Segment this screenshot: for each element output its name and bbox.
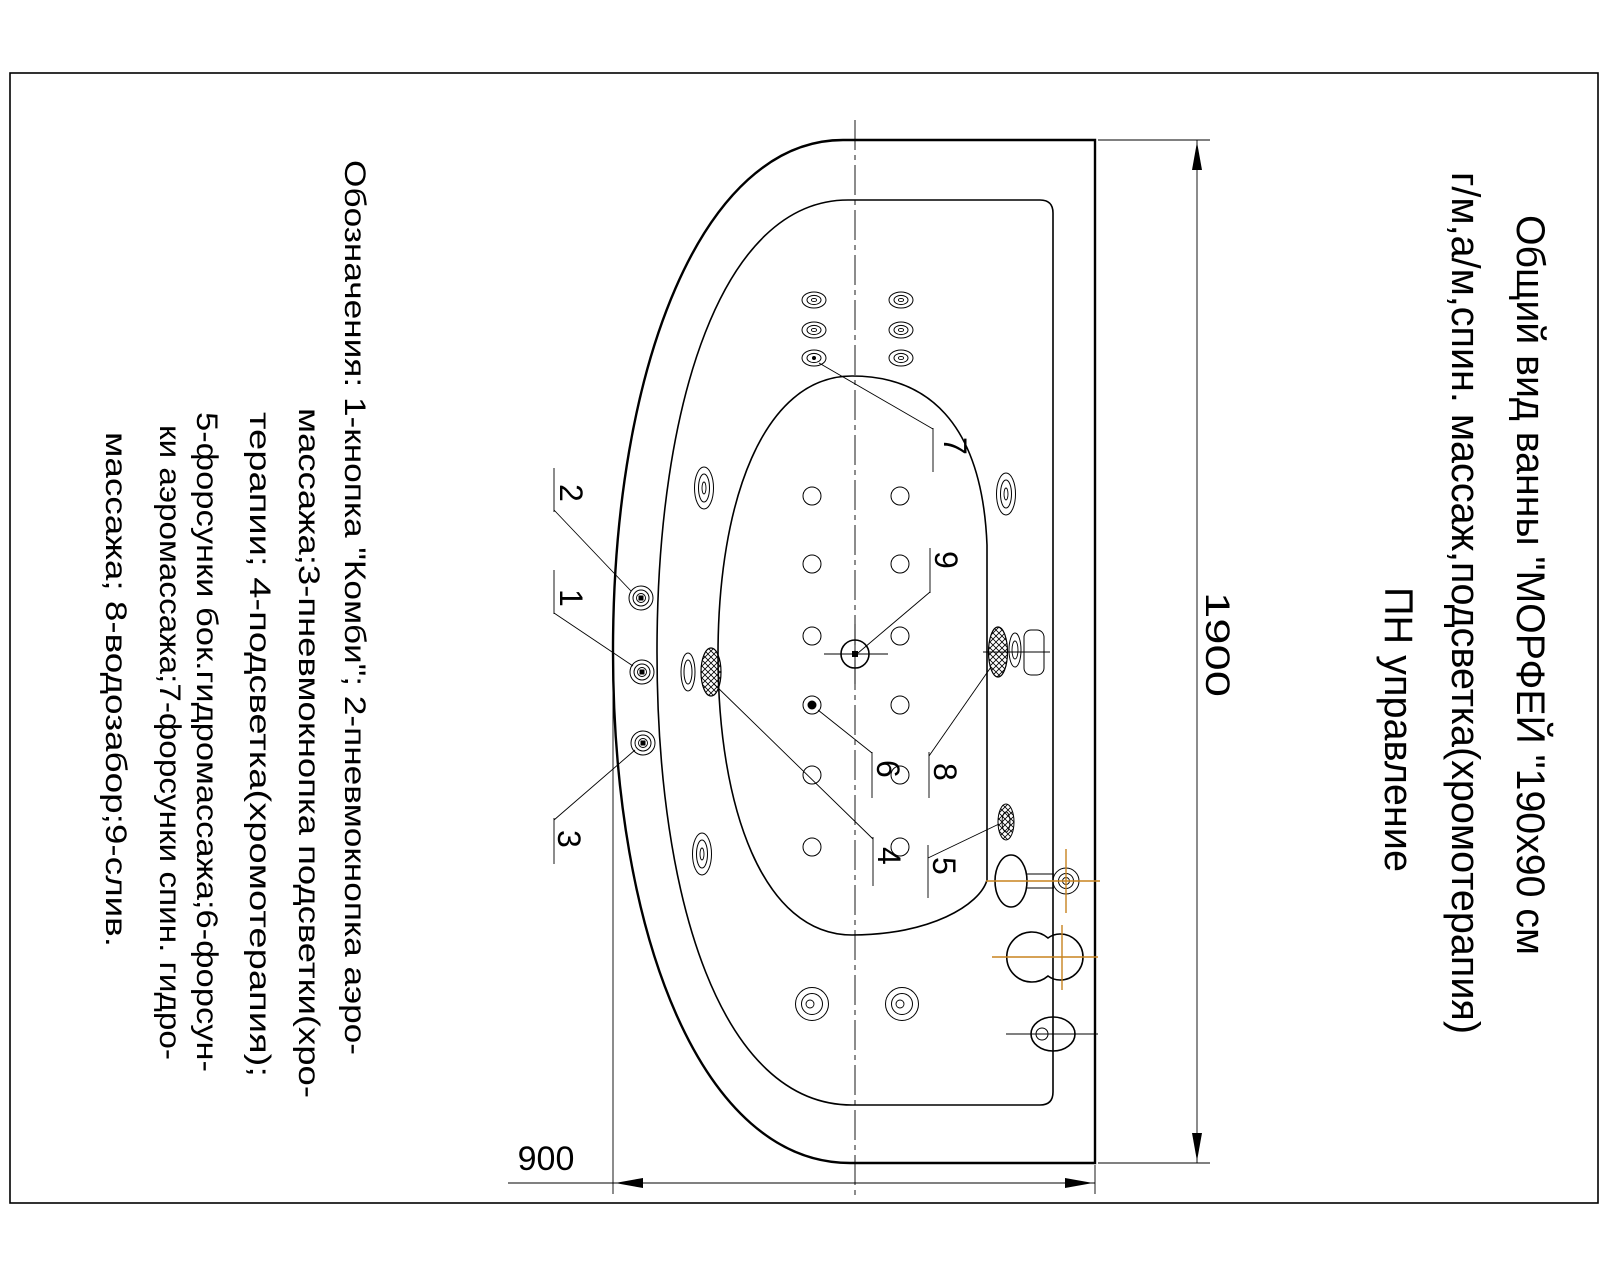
spinal-jet: [889, 292, 913, 308]
legend-line-6: массажа; 8-водозабор;9-слив.: [99, 432, 132, 947]
dimension-length: 1900: [1098, 140, 1236, 1163]
callout-9: 9: [928, 551, 964, 569]
callout-6: 6: [870, 760, 906, 778]
spinal-jet: [889, 350, 913, 366]
spinal-jet: [802, 292, 826, 308]
floor-jet-large: [796, 988, 829, 1021]
side-hydro-jets: [681, 467, 1016, 875]
callout-2: 2: [553, 484, 589, 502]
legend-line-1: Обозначения: 1-кнопка "Комби"; 2-пневмок…: [338, 160, 371, 1055]
dim-length-label: 1900: [1198, 592, 1236, 697]
side-jet: [997, 473, 1016, 515]
button-light: [631, 731, 655, 755]
title-line-3: ПН управление: [1376, 587, 1420, 872]
chromotherapy-light: [701, 648, 721, 696]
legend: Обозначения: 1-кнопка "Комби"; 2-пневмок…: [99, 160, 371, 1098]
control-buttons: [629, 586, 655, 755]
button-combi: [630, 660, 654, 684]
callout-1: 1: [553, 589, 589, 607]
side-jet: [681, 653, 695, 691]
legend-line-5: ки аэромассажа;7-форсунки спин. гидро-: [153, 425, 186, 1060]
faucet-handle: [986, 849, 1100, 913]
callout-labels: 1 2 3 4 5 6 7 8 9: [551, 437, 973, 875]
drain-control: [1006, 1003, 1098, 1065]
aero-massage-jets: [796, 487, 919, 1021]
dimension-width: 900: [508, 660, 1095, 1194]
spinal-jet: [802, 350, 826, 366]
callout-4: 4: [871, 847, 907, 865]
hand-shower: [992, 925, 1098, 990]
title-block: Общий вид ванны "МОРФЕЙ "190х90 см г/м,а…: [1376, 172, 1554, 1034]
side-jet: [695, 467, 714, 509]
title-line-2: г/м,а/м,спин. массаж,подсветка(хромотера…: [1443, 172, 1487, 1034]
spinal-massage-jets: [802, 292, 913, 366]
callout-5: 5: [926, 857, 962, 875]
title-line-1: Общий вид ванны "МОРФЕЙ "190х90 см: [1508, 215, 1554, 955]
callout-leaders: [554, 363, 999, 898]
aero-jet-callout-target: [808, 701, 817, 710]
technical-drawing: 1 2 3 4 5 6 7 8 9 1900 900 Общий вид ван…: [0, 0, 1600, 1280]
floor-jet-large: [886, 988, 919, 1021]
callout-3: 3: [551, 830, 587, 848]
water-intake-cluster: [983, 627, 1050, 677]
dim-width-label: 900: [518, 1140, 575, 1178]
legend-line-4: 5-форсунки бок.гидромассажа;6-форсун-: [190, 412, 223, 1072]
drawing-sheet: 1 2 3 4 5 6 7 8 9 1900 900 Общий вид ван…: [0, 0, 1600, 1280]
drain: [824, 624, 888, 684]
side-jet-hatched: [998, 804, 1014, 840]
side-jet: [693, 833, 712, 875]
legend-line-3: терапии; 4-подсветка(хромотерапия);: [243, 412, 276, 1077]
callout-7: 7: [937, 437, 973, 455]
legend-line-2: массажа;3-пневмокнопка подсветки(хро-: [292, 408, 325, 1098]
overflow-panel: [1024, 630, 1044, 675]
spinal-jet: [802, 322, 826, 338]
spinal-jet: [889, 322, 913, 338]
button-aero: [629, 586, 653, 610]
callout-8: 8: [927, 763, 963, 781]
water-intake: [989, 627, 1008, 677]
